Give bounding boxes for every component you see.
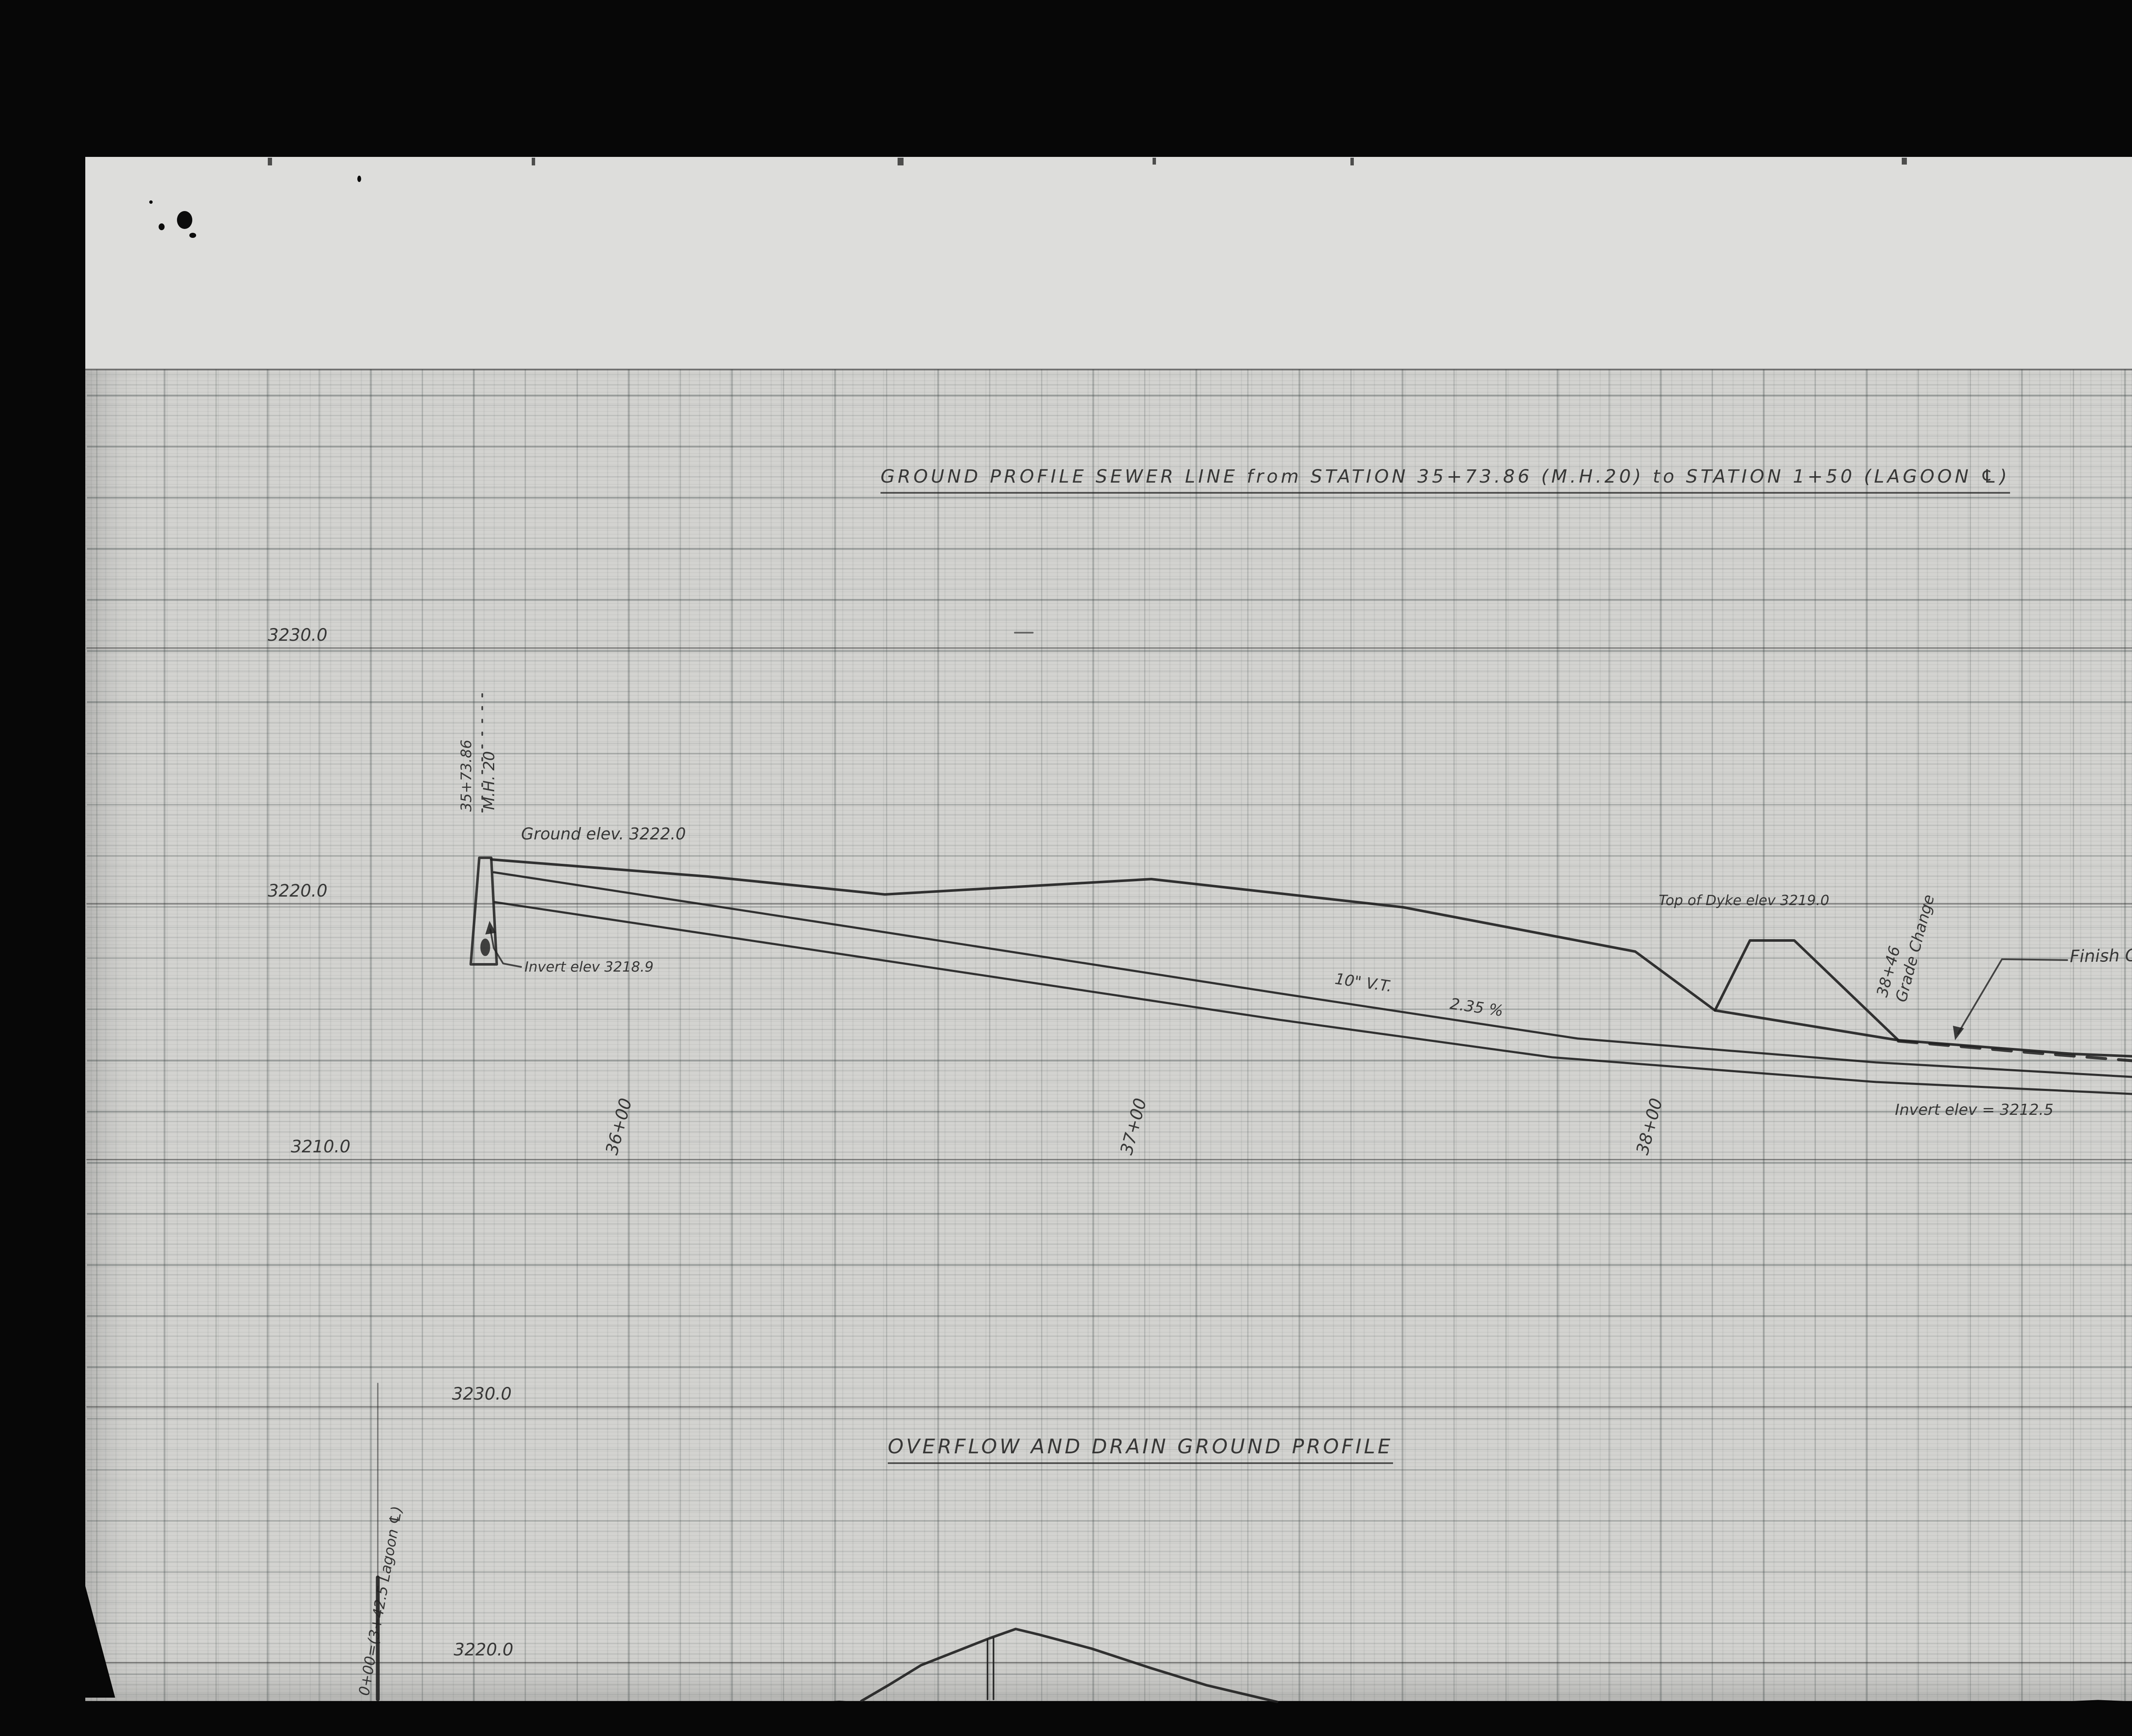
elevation-label-3220-top: 3220.0 (268, 882, 327, 900)
film-background: { "film": { "counter": "001498", "page_l… (0, 0, 2132, 1736)
main-title: GROUND PROFILE SEWER LINE from STATION 3… (881, 467, 2010, 494)
elevation-label-3210-top: 3210.0 (291, 1137, 351, 1156)
ground-elev-label: Ground elev. 3222.0 (521, 825, 686, 843)
finish-grade-leader (1958, 959, 2067, 1033)
pipe-invert-line (495, 902, 2132, 1099)
elevation-label-3220-bottom: 3220.0 (454, 1641, 513, 1659)
elevation-label-3230-top: 3230.0 (268, 626, 327, 645)
manhole-ink-blot (481, 939, 490, 956)
elevation-label-3230-bottom: 3230.0 (452, 1385, 512, 1403)
overflow-mound-line (861, 1629, 1277, 1702)
invert-mh-label: Invert elev 3218.9 (524, 959, 654, 975)
overflow-title: OVERFLOW AND DRAIN GROUND PROFILE (888, 1436, 1393, 1464)
finish-grade-label: Finish Grade of Lagoon (2070, 944, 2132, 966)
invert-lagoon-label: Invert elev = 3212.5 (1895, 1102, 2054, 1119)
profile-linework (0, 0, 2132, 1736)
finish-grade-arrowhead (1953, 1026, 1964, 1040)
manhole-name-label: M.H. 20 (481, 751, 498, 810)
manhole-station-label: 35+73.86 (459, 740, 475, 812)
dyke-elev-label: Top of Dyke elev 3219.0 (1659, 893, 1829, 908)
